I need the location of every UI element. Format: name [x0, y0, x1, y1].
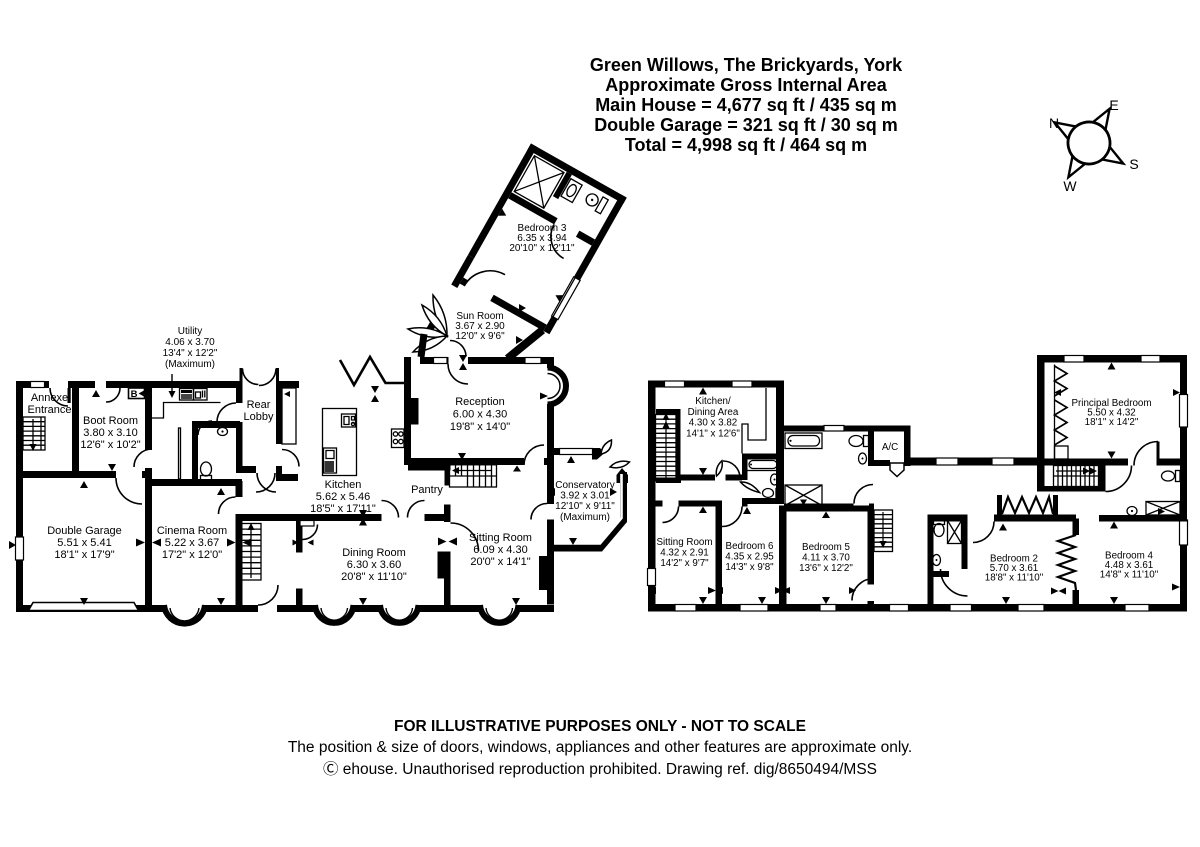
svg-text:Total = 4,998 sq ft / 464 sq m: Total = 4,998 sq ft / 464 sq m	[625, 135, 867, 155]
svg-text:Green Willows, The Brickyards,: Green Willows, The Brickyards, York	[590, 55, 903, 75]
svg-text:Sitting Room: Sitting Room	[656, 537, 712, 548]
svg-text:5.62 x 5.46: 5.62 x 5.46	[316, 491, 370, 503]
svg-text:12'6" x 10'2": 12'6" x 10'2"	[80, 439, 140, 451]
svg-text:Dining Area: Dining Area	[688, 407, 739, 418]
svg-text:14'2" x 9'7": 14'2" x 9'7"	[660, 558, 709, 569]
svg-text:20'10" x 12'11": 20'10" x 12'11"	[509, 243, 575, 254]
svg-text:The position & size of doors,: The position & size of doors, windows, a…	[288, 739, 912, 756]
svg-text:20'0" x 14'1": 20'0" x 14'1"	[470, 556, 530, 568]
svg-text:Rear: Rear	[247, 399, 271, 411]
svg-text:Reception: Reception	[455, 396, 505, 408]
svg-text:5.51 x 5.41: 5.51 x 5.41	[57, 537, 111, 549]
svg-text:18'8" x 11'10": 18'8" x 11'10"	[985, 573, 1044, 584]
svg-text:18'1" x 14'2": 18'1" x 14'2"	[1085, 417, 1139, 428]
svg-text:13'4" x 12'2": 13'4" x 12'2"	[163, 348, 218, 359]
svg-text:Cinema Room: Cinema Room	[157, 525, 227, 537]
svg-text:A/C: A/C	[882, 442, 898, 453]
svg-text:17'2" x 12'0": 17'2" x 12'0"	[162, 549, 222, 561]
svg-text:14'3" x 9'8": 14'3" x 9'8"	[725, 562, 774, 573]
svg-text:13'6" x 12'2": 13'6" x 12'2"	[799, 563, 853, 574]
svg-text:19'8" x 14'0": 19'8" x 14'0"	[450, 421, 510, 433]
svg-text:18'5" x 17'11": 18'5" x 17'11"	[310, 503, 376, 515]
svg-text:Bedroom 6: Bedroom 6	[726, 541, 774, 552]
svg-text:Bedroom 5: Bedroom 5	[802, 542, 850, 553]
svg-text:(Maximum): (Maximum)	[165, 359, 215, 370]
svg-text:6.00 x 4.30: 6.00 x 4.30	[453, 409, 507, 421]
svg-text:5.22 x 3.67: 5.22 x 3.67	[165, 537, 219, 549]
svg-text:6.09 x 4.30: 6.09 x 4.30	[473, 544, 527, 556]
svg-text:12'0" x 9'6": 12'0" x 9'6"	[455, 331, 505, 342]
svg-text:4.32 x 2.91: 4.32 x 2.91	[660, 548, 708, 559]
svg-text:FOR ILLUSTRATIVE PURPOSES ONLY: FOR ILLUSTRATIVE PURPOSES ONLY - NOT TO …	[394, 718, 806, 735]
svg-text:(Maximum): (Maximum)	[560, 512, 610, 523]
svg-text:N: N	[1049, 115, 1059, 131]
svg-text:Conservatory: Conservatory	[555, 480, 614, 491]
svg-text:12'10" x 9'11": 12'10" x 9'11"	[555, 501, 615, 512]
svg-text:6.30 x 3.60: 6.30 x 3.60	[347, 559, 401, 571]
svg-text:Lobby: Lobby	[244, 411, 274, 423]
svg-text:18'1" x 17'9": 18'1" x 17'9"	[54, 549, 114, 561]
svg-text:Pantry: Pantry	[411, 484, 443, 496]
svg-text:Boot Room: Boot Room	[83, 415, 138, 427]
svg-text:14'8" x 11'10": 14'8" x 11'10"	[1100, 570, 1159, 581]
svg-text:Entrance: Entrance	[27, 404, 71, 416]
svg-text:Kitchen: Kitchen	[325, 479, 362, 491]
svg-text:20'8" x 11'10": 20'8" x 11'10"	[341, 571, 407, 583]
svg-text:Double Garage = 321 sq ft / 30: Double Garage = 321 sq ft / 30 sq m	[594, 115, 898, 135]
svg-text:Double Garage: Double Garage	[47, 525, 122, 537]
svg-text:4.30 x 3.82: 4.30 x 3.82	[689, 418, 737, 429]
svg-text:B: B	[131, 389, 138, 400]
svg-text:Ⓒ ehouse. Unauthorised reprodu: Ⓒ ehouse. Unauthorised reproduction proh…	[323, 760, 877, 778]
svg-text:Annexe: Annexe	[31, 392, 68, 404]
svg-text:S: S	[1129, 156, 1138, 172]
svg-text:Utility: Utility	[178, 326, 202, 337]
svg-text:W: W	[1063, 178, 1077, 194]
svg-text:Sitting Room: Sitting Room	[469, 532, 532, 544]
svg-text:4.35 x 2.95: 4.35 x 2.95	[725, 552, 774, 563]
svg-text:4.11 x 3.70: 4.11 x 3.70	[802, 553, 850, 564]
svg-text:Dining Room: Dining Room	[342, 547, 406, 559]
svg-text:Approximate Gross Internal Are: Approximate Gross Internal Area	[605, 75, 887, 95]
svg-text:3.92 x 3.01: 3.92 x 3.01	[560, 491, 610, 502]
svg-text:3.80 x 3.10: 3.80 x 3.10	[83, 427, 137, 439]
svg-text:Main House = 4,677 sq ft / 435: Main House = 4,677 sq ft / 435 sq m	[595, 95, 897, 115]
svg-text:E: E	[1109, 97, 1118, 113]
svg-text:4.06 x 3.70: 4.06 x 3.70	[165, 337, 215, 348]
svg-text:Kitchen/: Kitchen/	[695, 396, 731, 407]
svg-text:14'1" x 12'6": 14'1" x 12'6"	[686, 428, 740, 439]
